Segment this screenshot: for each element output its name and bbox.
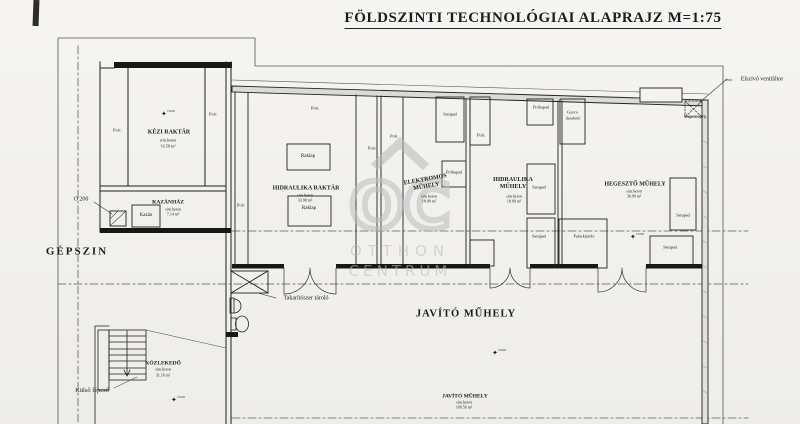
room-floor-kezi-raktar: sim.beton bbox=[160, 137, 176, 142]
external-stair-label: Külső lépcső bbox=[75, 387, 109, 395]
level-marker-2: ✦±0.00 bbox=[630, 226, 644, 244]
level-marker-icon: ✦ bbox=[492, 349, 498, 357]
gepszin-label: GÉPSZIN bbox=[46, 245, 108, 258]
room-area-hidraulika-muhely: 18.00 m² bbox=[507, 200, 521, 205]
level-marker-icon: ✦ bbox=[630, 233, 636, 241]
room-area-kozlekedo: 31.16 m² bbox=[156, 374, 170, 379]
room-name-hidraulika-muhely: HIDRAULIKA MŰHELY bbox=[490, 177, 536, 191]
vice-bench-label-2: Satupad bbox=[532, 184, 546, 189]
room-area-elektromos-muhely: 18.00 m² bbox=[422, 200, 436, 205]
boiler-label: Kazán bbox=[140, 213, 153, 219]
watermark-centrum: CENTRUM bbox=[349, 262, 452, 280]
vice-bench-label-4: Satupad bbox=[676, 212, 690, 217]
vice-bench-label-5: Satupad bbox=[663, 244, 677, 249]
pallet-label-2: Raklap bbox=[302, 206, 316, 212]
room-name-hegeszto-muhely: HEGESZTŐ MŰHELY bbox=[604, 181, 665, 188]
room-name-kezi-raktar: KÉZI RAKTÁR bbox=[148, 129, 191, 136]
room-area-hidraulika-raktar: 33.90 m² bbox=[298, 199, 312, 204]
room-name-hidraulika-raktar: HIDRAULIKA RAKTÁR bbox=[273, 185, 340, 192]
room-area-kazanhaz: 7.14 m² bbox=[167, 213, 179, 218]
chimney-diameter-label: O 200 bbox=[74, 196, 89, 203]
cutter-label-line1: Gyors- bbox=[567, 109, 579, 114]
level-marker-icon: ✦ bbox=[171, 396, 177, 404]
floor-plan-document: OC OTTHON CENTRUM FÖLDSZINTI TECHNOLÓGIA… bbox=[0, 0, 800, 424]
page-title: FÖLDSZINTI TECHNOLÓGIAI ALAPRAJZ M=1:75 bbox=[344, 9, 721, 29]
welder-label: Hegesztőgép bbox=[684, 113, 706, 118]
shelf-label-2: Polc bbox=[209, 111, 217, 116]
shelf-label-3: Polc bbox=[311, 105, 319, 110]
test-bench-label-2: Próbapad bbox=[533, 104, 549, 109]
watermark-otthon: OTTHON bbox=[350, 242, 450, 260]
cutter-label-line2: daraboló bbox=[566, 115, 581, 120]
test-bench-label-1: Próbapad bbox=[446, 169, 462, 174]
shelf-label-6: Polc bbox=[390, 133, 398, 138]
room-name-kazanhaz: KAZÁNHÁZ bbox=[152, 200, 184, 207]
cleaning-storage-label: Takarítószer tároló bbox=[283, 295, 328, 302]
vice-bench-label-3: Satupad bbox=[532, 233, 546, 238]
shelf-label-7: Polc bbox=[477, 132, 485, 137]
exhaust-fan-label: Elszívó ventilátor bbox=[741, 76, 784, 83]
vice-bench-label-1: Satupad bbox=[443, 111, 457, 116]
room-area-javito-muhely: 160.56 m² bbox=[456, 406, 472, 411]
shelf-label-1: Polc bbox=[113, 127, 121, 132]
shelf-label-5: Polc bbox=[368, 145, 376, 150]
level-marker-icon: ✦ bbox=[161, 110, 167, 118]
level-marker-3: ✦±0.00 bbox=[492, 342, 506, 360]
room-area-kezi-raktar: 16.58 m² bbox=[161, 143, 176, 148]
bottle-storage-label: Palacktároló bbox=[574, 233, 595, 238]
shelf-label-4: Polc bbox=[237, 202, 245, 207]
level-marker-1: ✦±0.00 bbox=[161, 103, 175, 121]
level-marker-4: ✦±0.00 bbox=[171, 389, 185, 407]
room-area-hegeszto-muhely: 30.90 m² bbox=[627, 195, 641, 200]
room-name-javito-muhely: JAVÍTÓ MŰHELY bbox=[416, 309, 516, 322]
pallet-label-1: Raklap bbox=[301, 154, 315, 160]
